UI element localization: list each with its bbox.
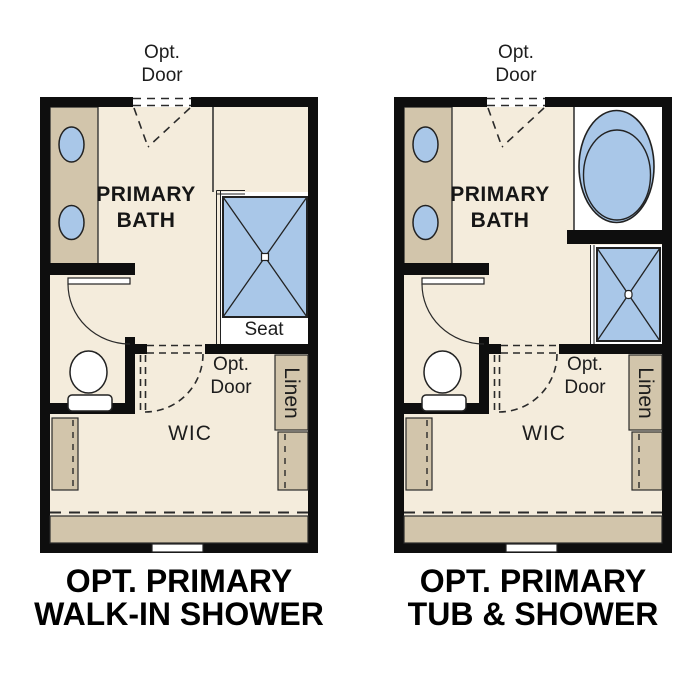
label-opt-door-top-line1: Opt. [456, 41, 576, 64]
wall-top-left [394, 97, 487, 107]
label-opt-door-top: Opt. Door [102, 41, 222, 87]
label-opt-door-top-line1: Opt. [102, 41, 222, 64]
sink-basin-top [59, 127, 84, 162]
plan-tub-and-shower-drawing [394, 97, 672, 553]
label-opt-door-top-line2: Door [456, 64, 576, 87]
plan-walk-in-shower: Opt. Door PRIMARY BATH Seat Opt. Door WI… [40, 97, 318, 553]
label-opt-door-top-line2: Door [102, 64, 222, 87]
shower-drain [262, 254, 269, 261]
label-wic: WIC [140, 422, 240, 446]
wall-under-vanity [50, 263, 135, 275]
wall-top-right [545, 97, 672, 107]
wall-stub [135, 344, 147, 354]
wall-right [308, 97, 318, 553]
entry-threshold [152, 544, 203, 552]
toilet-door-leaf [422, 278, 484, 284]
tub [579, 111, 654, 223]
closet-shelf-bottom [50, 516, 308, 543]
closet-shelf-right [278, 432, 308, 490]
entry-threshold [506, 544, 557, 552]
toilet-bowl [70, 351, 107, 393]
label-seat: Seat [220, 319, 308, 341]
toilet-door-leaf [68, 278, 130, 284]
caption-tub-and-shower: OPT. PRIMARY TUB & SHOWER [353, 565, 687, 631]
label-linen: Linen [635, 353, 655, 433]
wall-left [40, 97, 50, 553]
wall-left [394, 97, 404, 553]
wall-tub-shower [567, 230, 662, 244]
floorplan-canvas: Opt. Door PRIMARY BATH Seat Opt. Door WI… [0, 0, 687, 687]
toilet-tank [422, 395, 466, 411]
caption-walk-in-shower: OPT. PRIMARY WALK-IN SHOWER [0, 565, 359, 631]
wall-top-left [40, 97, 133, 107]
label-opt-door-top: Opt. Door [456, 41, 576, 87]
label-linen: Linen [281, 353, 301, 433]
wall-right [662, 97, 672, 553]
wall-stub [489, 344, 501, 354]
wall-toilet-right [479, 337, 489, 404]
label-opt-door-wic: Opt. Door [192, 353, 270, 399]
wall-top-right [191, 97, 318, 107]
toilet-tank [68, 395, 112, 411]
shower-drain [625, 291, 632, 299]
sink-basin-top [413, 127, 438, 162]
label-wic: WIC [494, 422, 594, 446]
toilet-bowl [424, 351, 461, 393]
wall-toilet-right [125, 337, 135, 404]
closet-shelf-bottom [404, 516, 662, 543]
closet-shelf-left [406, 418, 432, 490]
label-primary-bath: PRIMARY BATH [420, 182, 580, 234]
plan-tub-and-shower: Opt. Door PRIMARY BATH Opt. Door WIC Lin… [394, 97, 672, 553]
label-opt-door-wic: Opt. Door [546, 353, 624, 399]
wall-under-vanity [404, 263, 489, 275]
closet-shelf-left [52, 418, 78, 490]
label-primary-bath: PRIMARY BATH [66, 182, 226, 234]
closet-shelf-right [632, 432, 662, 490]
